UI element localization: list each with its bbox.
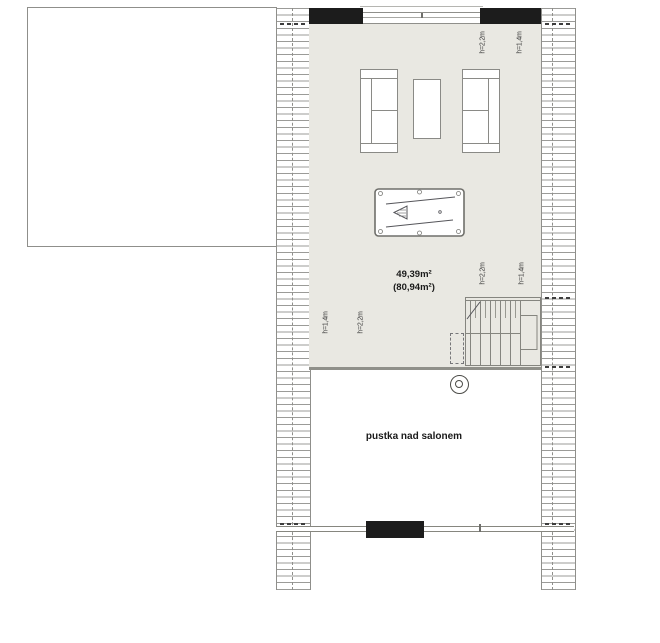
coffee-table — [413, 79, 441, 139]
top-wall-left-segment — [309, 8, 363, 24]
sofa-right-backrest — [488, 78, 489, 143]
sofa-left — [360, 69, 398, 153]
adjoining-roof-outline — [27, 7, 277, 247]
staircase-graphic — [465, 297, 541, 366]
roof-hatch-right — [541, 8, 576, 590]
height-label-midright-h14: h=1,4m — [518, 257, 527, 291]
roof-hatch-left — [276, 8, 311, 590]
top-window — [363, 12, 480, 24]
strip-tick-left-top — [280, 23, 305, 25]
top-wall-outer-line — [360, 6, 483, 7]
height-label-midright-h22: h=2,2m — [479, 257, 488, 291]
roof-ridge-dash-right — [552, 8, 553, 590]
roof-ridge-dash-left — [292, 8, 293, 590]
window-center-tick — [421, 13, 423, 18]
strip-tick-right-top — [545, 23, 570, 25]
strip-tick-right-bottom — [545, 523, 570, 525]
staircase — [465, 297, 541, 366]
height-label-left-h22: h=2,2m — [357, 306, 366, 340]
chimney-block — [366, 521, 424, 538]
area-label-gross: (80,94m²) — [344, 282, 484, 295]
void-area-label: pustka nad salonem — [334, 431, 494, 442]
strip-tick-left-bottom — [280, 523, 305, 525]
top-wall-right-segment — [480, 8, 541, 24]
billiard-table — [374, 188, 465, 237]
billiard-table-graphic — [374, 188, 465, 237]
bottom-wall — [276, 526, 574, 532]
height-label-topright-h22: h=2,2m — [479, 26, 488, 60]
height-label-topright-h14: h=1,4m — [516, 26, 525, 60]
strip-tick-right-stairbottom — [545, 366, 570, 368]
sofa-left-armrest-top — [361, 78, 397, 79]
stair-opening-dashed-outline — [450, 333, 464, 364]
sofa-right-armrest-top — [463, 78, 499, 79]
chimney-pipe-inner-circle — [455, 380, 463, 388]
height-label-left-h14: h=1,4m — [322, 306, 331, 340]
sofa-right — [462, 69, 500, 153]
sofa-left-cushion-divider — [371, 110, 397, 111]
chimney-pipe-icon — [450, 375, 469, 394]
floor-plan-canvas: 49,39m² (80,94m²) pustka nad salonem h=2… — [0, 0, 660, 643]
strip-tick-right-stairtop — [545, 297, 570, 299]
bottom-wall-tick — [479, 524, 481, 532]
area-label: 49,39m² (80,94m²) — [344, 269, 484, 294]
sofa-right-armrest-bottom — [463, 143, 499, 144]
sofa-left-armrest-bottom — [361, 143, 397, 144]
area-label-net: 49,39m² — [344, 269, 484, 282]
sofa-right-cushion-divider — [463, 110, 488, 111]
